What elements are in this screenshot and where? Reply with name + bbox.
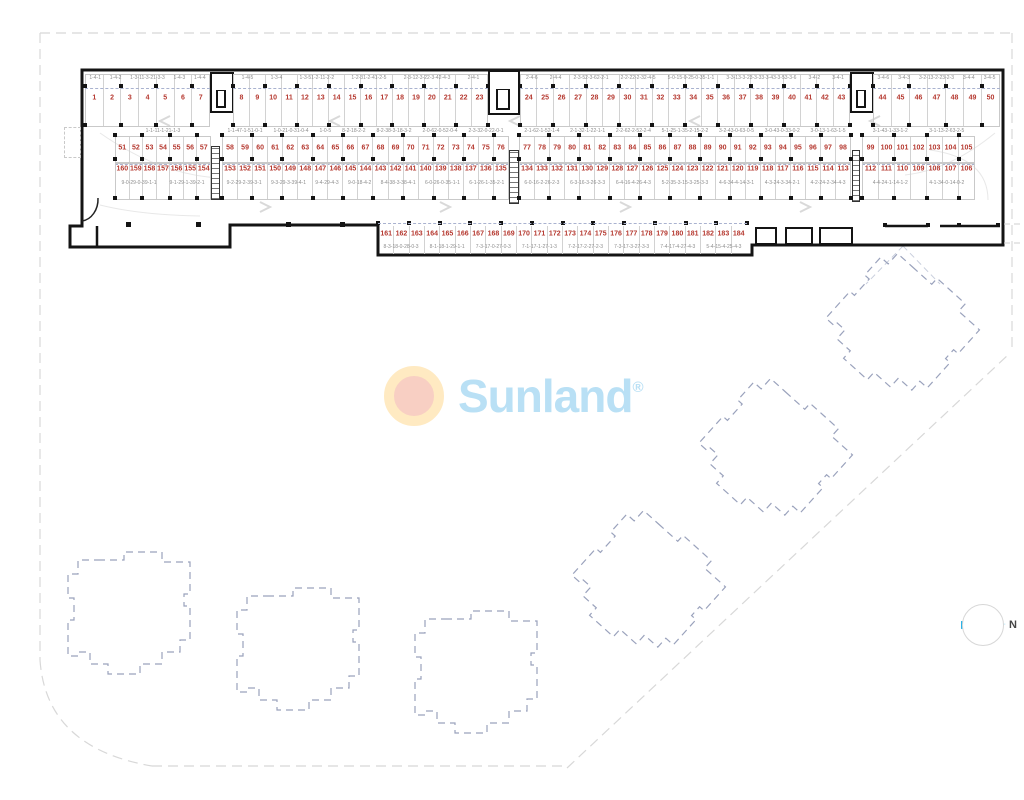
pillar xyxy=(584,123,588,127)
parking-space-number: 145 xyxy=(343,165,357,172)
parking-space-number: 161 xyxy=(379,231,393,238)
pillar xyxy=(608,133,612,137)
pillar xyxy=(119,123,123,127)
parking-space-number: 84 xyxy=(625,144,639,151)
parking-space: 38 xyxy=(751,75,767,126)
parking-floor-plan: Sunland® N 12345671-4-11-4-21-3-11-3-21-… xyxy=(0,0,1024,800)
lift-shaft xyxy=(856,90,866,109)
lift-shaft xyxy=(216,90,226,109)
parking-space-number: 8 xyxy=(234,95,249,102)
lane-arrow xyxy=(440,202,450,212)
building-outline xyxy=(68,552,190,674)
unit-code: 8-4-38-3-38-4-1 xyxy=(381,181,416,186)
parking-space: 3 xyxy=(121,75,139,126)
pillar xyxy=(716,123,720,127)
pillar xyxy=(168,196,172,200)
logo-wordmark: Sunland® xyxy=(458,373,643,419)
pillar xyxy=(907,123,911,127)
parking-space-number: 57 xyxy=(197,144,210,151)
parking-space: 44 xyxy=(874,75,892,126)
parking-space: 8 xyxy=(234,75,250,126)
parking-space: 85 xyxy=(640,137,655,162)
parking-space-number: 152 xyxy=(238,165,252,172)
pillar xyxy=(113,157,117,161)
pillar xyxy=(668,196,672,200)
pillar xyxy=(83,123,87,127)
parking-dash-line xyxy=(378,223,747,224)
stair-core xyxy=(488,70,520,115)
parking-space-number: 34 xyxy=(686,95,701,102)
pillar xyxy=(547,196,551,200)
building-outline xyxy=(560,498,732,670)
parking-space: 28 xyxy=(587,75,603,126)
pillar xyxy=(454,123,458,127)
parking-space: 1 xyxy=(86,75,104,126)
parking-space-number: 33 xyxy=(669,95,684,102)
pillar xyxy=(728,133,732,137)
unit-code: 9-1-29-1-39-2-1 xyxy=(169,181,204,186)
pillar xyxy=(220,157,224,161)
ramp-marker xyxy=(64,127,81,158)
parking-space: 9 xyxy=(250,75,266,126)
unit-code: 3-2-43-0-63-0-5 xyxy=(719,129,754,134)
pillar xyxy=(698,133,702,137)
parking-space-number: 9 xyxy=(250,95,265,102)
parking-space: 77 xyxy=(520,137,535,162)
pillar xyxy=(231,123,235,127)
unit-code: 3-4-2 xyxy=(808,76,820,81)
parking-space-number: 82 xyxy=(595,144,609,151)
pillar xyxy=(154,123,158,127)
unit-code: 1-4-5 xyxy=(242,76,254,81)
pillar xyxy=(220,196,224,200)
pillar xyxy=(422,123,426,127)
building-outline xyxy=(237,588,359,710)
pillar xyxy=(113,196,117,200)
pillar xyxy=(280,133,284,137)
unit-codes: 8-3-18-0-28-0-38-1-18-1-29-1-17-3-17-0-2… xyxy=(378,244,747,251)
parking-space-number: 4 xyxy=(139,95,156,102)
parking-space-number: 18 xyxy=(393,95,408,102)
parking-space: 47 xyxy=(928,75,946,126)
pillar xyxy=(860,157,864,161)
parking-space: 23 xyxy=(472,75,487,126)
parking-space-number: 5 xyxy=(157,95,174,102)
sun-icon xyxy=(384,366,444,426)
parking-space-number: 74 xyxy=(464,144,478,151)
parking-space: 37 xyxy=(735,75,751,126)
unit-code: 3-0-43-0-33-0-2 xyxy=(765,129,800,134)
unit-code: 1-3-51-2-11-2-2 xyxy=(300,76,335,81)
parking-space-number: 166 xyxy=(456,231,470,238)
pillar xyxy=(547,133,551,137)
parking-space: 10 xyxy=(266,75,282,126)
unit-code: 7-1-17-1-27-1-3 xyxy=(522,245,557,250)
building-outline xyxy=(687,366,859,538)
parking-space-number: 51 xyxy=(116,144,129,151)
stair-core xyxy=(210,72,234,113)
pillar xyxy=(492,157,496,161)
parking-space-number: 92 xyxy=(746,144,760,151)
parking-space-number: 44 xyxy=(874,95,891,102)
parking-space-number: 2 xyxy=(104,95,121,102)
parking-space-number: 15 xyxy=(345,95,360,102)
parking-space-number: 36 xyxy=(718,95,733,102)
parking-space-number: 54 xyxy=(157,144,170,151)
parking-space: 58 xyxy=(223,137,238,162)
parking-space-number: 40 xyxy=(784,95,799,102)
parking-space: 7 xyxy=(192,75,209,126)
pillar xyxy=(462,196,466,200)
parking-space-number: 53 xyxy=(143,144,156,151)
unit-code: 1-4-2 xyxy=(110,76,122,81)
pillar xyxy=(819,157,823,161)
parking-space-number: 27 xyxy=(570,95,585,102)
unit-codes: 1-4-51-3-41-3-51-2-11-2-21-2-31-2-41-2-5… xyxy=(233,75,488,82)
parking-space: 5 xyxy=(157,75,175,126)
parking-space-number: 20 xyxy=(425,95,440,102)
parking-space-number: 108 xyxy=(927,165,942,172)
pillar xyxy=(341,133,345,137)
parking-space-number: 182 xyxy=(701,231,715,238)
lane-arrow xyxy=(260,202,270,212)
parking-space: 24 xyxy=(521,75,537,126)
parking-space-number: 155 xyxy=(184,165,197,172)
parking-space-number: 157 xyxy=(157,165,170,172)
parking-space-number: 115 xyxy=(806,165,820,172)
unit-code: 1-1-47-1-51-0-1 xyxy=(227,129,262,134)
parking-space-number: 58 xyxy=(223,144,237,151)
parking-space: 70 xyxy=(404,137,419,162)
parking-space-number: 26 xyxy=(554,95,569,102)
pillar xyxy=(462,133,466,137)
pillar xyxy=(401,196,405,200)
pillar xyxy=(518,123,522,127)
pillar xyxy=(140,157,144,161)
stairway-icon xyxy=(852,150,860,202)
parking-space-number: 125 xyxy=(655,165,669,172)
parking-space-number: 79 xyxy=(550,144,564,151)
parking-space: 45 xyxy=(892,75,910,126)
parking-space-number: 71 xyxy=(419,144,433,151)
unit-code: 1-0-21-0-31-0-4 xyxy=(273,129,308,134)
parking-space: 12 xyxy=(298,75,314,126)
unit-code: 8-2-38-3-18-3-2 xyxy=(376,129,411,134)
pillar xyxy=(608,196,612,200)
parking-space: 14 xyxy=(329,75,345,126)
parking-space-number: 28 xyxy=(587,95,602,102)
parking-space-number: 13 xyxy=(313,95,328,102)
compass-circle xyxy=(962,604,1004,646)
parking-space: 72 xyxy=(434,137,449,162)
pillar xyxy=(849,196,853,200)
parking-space: 43 xyxy=(834,75,849,126)
parking-space-number: 121 xyxy=(716,165,730,172)
parking-space-number: 89 xyxy=(701,144,715,151)
unit-code: 6-1-26-1-35-2-1 xyxy=(469,181,504,186)
parking-space-number: 101 xyxy=(895,144,910,151)
parking-space: 26 xyxy=(554,75,570,126)
parking-space: 60 xyxy=(253,137,268,162)
pillar xyxy=(892,196,896,200)
parking-space-number: 153 xyxy=(223,165,237,172)
parking-space-number: 83 xyxy=(610,144,624,151)
parking-space: 50 xyxy=(982,75,999,126)
pillar xyxy=(944,123,948,127)
lane-arrow xyxy=(620,202,630,212)
parking-space: 4 xyxy=(139,75,157,126)
parking-space-number: 136 xyxy=(479,165,493,172)
parking-space: 39 xyxy=(768,75,784,126)
parking-space-number: 95 xyxy=(791,144,805,151)
unit-code: 9-0-29-0-39-1-1 xyxy=(121,181,156,186)
parking-space-number: 133 xyxy=(535,165,549,172)
parking-space: 11 xyxy=(282,75,298,126)
pillar xyxy=(759,133,763,137)
pillar xyxy=(617,123,621,127)
pillar xyxy=(250,196,254,200)
pillar xyxy=(759,157,763,161)
parking-row-group: 7778798081828384858687888990919293949596… xyxy=(519,136,851,163)
parking-space: 31 xyxy=(636,75,652,126)
driveway-stub xyxy=(1004,224,1024,243)
parking-space: 87 xyxy=(670,137,685,162)
parking-dash-line xyxy=(873,88,1000,89)
unit-code: 3-3-13-3-23-3-33-3-43-3-53-3-6 xyxy=(726,76,796,81)
parking-space-number: 130 xyxy=(580,165,594,172)
unit-code: 9-3-29-3-39-4-1 xyxy=(271,181,306,186)
parking-space-number: 111 xyxy=(879,165,894,172)
parking-space-number: 93 xyxy=(761,144,775,151)
pillar xyxy=(892,133,896,137)
pillar xyxy=(980,123,984,127)
parking-space-number: 75 xyxy=(479,144,493,151)
parking-space-number: 22 xyxy=(456,95,471,102)
parking-space-number: 49 xyxy=(964,95,981,102)
pillar xyxy=(140,196,144,200)
parking-space-number: 55 xyxy=(170,144,183,151)
pillar xyxy=(517,157,521,161)
pillar xyxy=(551,123,555,127)
parking-space-number: 46 xyxy=(910,95,927,102)
parking-space-number: 56 xyxy=(184,144,197,151)
parking-space-number: 164 xyxy=(425,231,439,238)
unit-code: 2-4-1 xyxy=(468,76,480,81)
pillar xyxy=(728,196,732,200)
pillar xyxy=(295,123,299,127)
parking-space-number: 107 xyxy=(943,165,958,172)
pillar xyxy=(749,123,753,127)
pillar xyxy=(860,133,864,137)
pillar xyxy=(195,196,199,200)
unit-code: 5-0-15-0-25-0-35-1-1 xyxy=(668,76,715,81)
parking-space-number: 123 xyxy=(686,165,700,172)
parking-space-number: 52 xyxy=(130,144,143,151)
pillar xyxy=(871,123,875,127)
pillar xyxy=(390,123,394,127)
logo-text: Sunland xyxy=(458,370,632,422)
unit-code: 3-4-3 xyxy=(898,76,910,81)
parking-space: 74 xyxy=(464,137,479,162)
registered-mark: ® xyxy=(632,379,642,396)
parking-space-number: 156 xyxy=(170,165,183,172)
parking-space-number: 30 xyxy=(620,95,635,102)
parking-space-number: 117 xyxy=(776,165,790,172)
pillar xyxy=(517,196,521,200)
unit-code: 6-0-26-0-35-1-1 xyxy=(425,181,460,186)
parking-space-number: 119 xyxy=(746,165,760,172)
parking-space-number: 167 xyxy=(471,231,485,238)
pillar xyxy=(608,157,612,161)
pillar xyxy=(341,196,345,200)
unit-code: 1-4-3 xyxy=(174,76,186,81)
boundary-junction xyxy=(866,246,940,284)
parking-space-number: 162 xyxy=(394,231,408,238)
pillar xyxy=(782,123,786,127)
pillar xyxy=(401,133,405,137)
unit-code: 1-0-5 xyxy=(319,129,331,134)
parking-space-number: 90 xyxy=(716,144,730,151)
door-arc xyxy=(82,198,98,221)
pillar xyxy=(789,157,793,161)
pillar xyxy=(577,133,581,137)
parking-space-number: 77 xyxy=(520,144,534,151)
parking-space-number: 69 xyxy=(389,144,403,151)
pillar xyxy=(401,157,405,161)
unit-code: 2-1-32-1-22-1-1 xyxy=(570,129,605,134)
parking-space-number: 6 xyxy=(175,95,192,102)
parking-space-number: 104 xyxy=(943,144,958,151)
parking-space: 49 xyxy=(964,75,982,126)
pillar xyxy=(668,157,672,161)
parking-space-number: 10 xyxy=(266,95,281,102)
unit-code: 8-1-18-1-29-1-1 xyxy=(430,245,465,250)
parking-space-number: 114 xyxy=(821,165,835,172)
parking-space-number: 61 xyxy=(268,144,282,151)
parking-space-number: 112 xyxy=(863,165,878,172)
parking-space-number: 147 xyxy=(313,165,327,172)
pillar xyxy=(789,133,793,137)
parking-space-number: 72 xyxy=(434,144,448,151)
unit-code: 7-2-17-2-27-2-3 xyxy=(568,245,603,250)
pillar xyxy=(280,157,284,161)
unit-codes: 9-2-29-2-39-3-19-3-29-3-39-4-19-4-29-4-3… xyxy=(222,180,509,187)
pillar xyxy=(577,157,581,161)
unit-codes: 9-0-29-0-39-1-19-1-29-1-39-2-1 xyxy=(115,180,211,187)
pillar xyxy=(849,133,853,137)
unit-code: 3-2-13-2-23-2-3 xyxy=(919,76,954,81)
unit-code: 9-4-29-4-3 xyxy=(315,181,338,186)
parking-space-number: 175 xyxy=(594,231,608,238)
parking-space: 66 xyxy=(343,137,358,162)
parking-space-number: 60 xyxy=(253,144,267,151)
pillar xyxy=(113,133,117,137)
pillar xyxy=(925,196,929,200)
parking-space-number: 102 xyxy=(911,144,926,151)
parking-space: 97 xyxy=(821,137,836,162)
pillar xyxy=(848,123,852,127)
storage-rooms xyxy=(756,228,852,244)
parking-space-number: 68 xyxy=(373,144,387,151)
pillar xyxy=(957,133,961,137)
parking-space-number: 159 xyxy=(130,165,143,172)
parking-space: 55 xyxy=(170,137,184,162)
parking-space-number: 97 xyxy=(821,144,835,151)
pillar xyxy=(698,196,702,200)
parking-space: 53 xyxy=(143,137,157,162)
parking-space-number: 59 xyxy=(238,144,252,151)
unit-code: 6-0-16-2-26-2-3 xyxy=(524,181,559,186)
pillar xyxy=(815,123,819,127)
compass-north-label: N xyxy=(1009,619,1017,631)
pillar xyxy=(849,157,853,161)
parking-space: 98 xyxy=(836,137,850,162)
parking-space-number: 24 xyxy=(521,95,536,102)
parking-row-group: 58596061626364656667686970717273747576 xyxy=(222,136,509,163)
pillar xyxy=(250,133,254,137)
parking-space-number: 142 xyxy=(389,165,403,172)
unit-code: 8-2-18-2-2 xyxy=(342,129,365,134)
pillar xyxy=(728,157,732,161)
parking-dash-line xyxy=(520,88,850,89)
parking-space: 16 xyxy=(361,75,377,126)
unit-codes: 2-4-62-4-42-3-52-3-62-2-12-2-22-2-32-4-5… xyxy=(520,75,850,82)
parking-space-number: 80 xyxy=(565,144,579,151)
parking-space-number: 41 xyxy=(801,95,816,102)
parking-space-number: 138 xyxy=(449,165,463,172)
unit-code: 1-3-11-3-21-3-3 xyxy=(130,76,165,81)
parking-space-number: 64 xyxy=(313,144,327,151)
parking-space-number: 11 xyxy=(282,95,297,102)
parking-space-number: 48 xyxy=(946,95,963,102)
pillar xyxy=(190,123,194,127)
parking-space-number: 81 xyxy=(580,144,594,151)
pillar xyxy=(220,133,224,137)
pillar xyxy=(668,133,672,137)
parking-space-number: 65 xyxy=(328,144,342,151)
parking-space-number: 85 xyxy=(640,144,654,151)
parking-space-number: 38 xyxy=(751,95,766,102)
pillar xyxy=(359,123,363,127)
pillar xyxy=(486,123,490,127)
parking-space-number: 100 xyxy=(879,144,894,151)
unit-code: 7-4-17-4-27-4-3 xyxy=(660,245,695,250)
parking-space-number: 96 xyxy=(806,144,820,151)
parking-space-number: 12 xyxy=(298,95,313,102)
parking-space-number: 177 xyxy=(624,231,638,238)
pillar xyxy=(517,133,521,137)
parking-space-number: 137 xyxy=(464,165,478,172)
parking-space-number: 181 xyxy=(686,231,700,238)
parking-space-number: 70 xyxy=(404,144,418,151)
unit-code: 1-4-1 xyxy=(89,76,101,81)
pillar xyxy=(638,157,642,161)
parking-space-number: 1 xyxy=(86,95,103,102)
pillar xyxy=(759,196,763,200)
pillar xyxy=(492,196,496,200)
unit-code: 3-4-5 xyxy=(984,76,996,81)
building-outline xyxy=(415,611,537,733)
parking-space-number: 45 xyxy=(892,95,909,102)
parking-space-number: 76 xyxy=(494,144,508,151)
pillar xyxy=(341,157,345,161)
parking-space-number: 141 xyxy=(404,165,418,172)
parking-space-number: 106 xyxy=(959,165,974,172)
unit-code: 2-2-62-2-52-2-4 xyxy=(616,129,651,134)
pillar xyxy=(698,157,702,161)
unit-code: 2-4-6 xyxy=(526,76,538,81)
parking-space-number: 3 xyxy=(121,95,138,102)
